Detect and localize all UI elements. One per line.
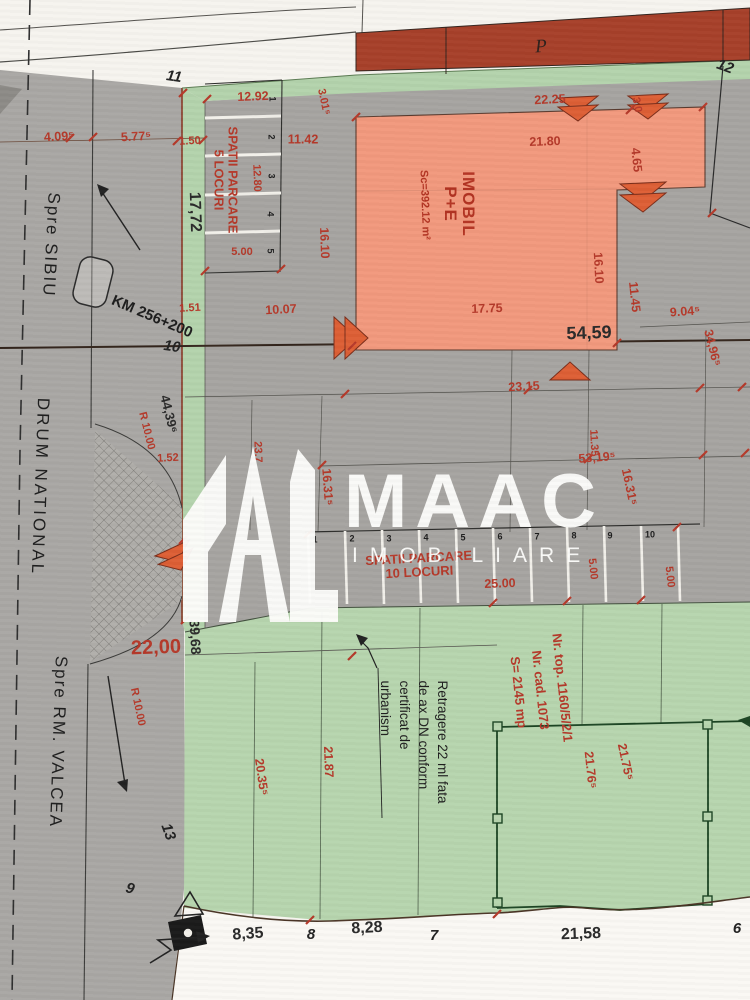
stall-number: 6 [497, 532, 502, 541]
building-area-label: Sc=392.12 m² [417, 170, 431, 240]
dim: 12.80 [250, 164, 263, 192]
dim-black: 21,58 [561, 926, 602, 944]
dim: 5.00 [231, 247, 252, 259]
dim: 4.09⁵ [44, 130, 75, 145]
dim: 22,00 [131, 637, 182, 660]
stall-number: 7 [534, 532, 539, 541]
stall-number: 8 [571, 531, 576, 540]
parking-bottom-title: SPATII PARCARE 10 LOCURI [365, 549, 473, 582]
dim: 4.65 [628, 147, 644, 173]
setback-note: Retragere 22 ml fata de ax DN conform ce… [375, 680, 451, 803]
green-area [184, 602, 750, 921]
dim: 5.77⁵ [121, 130, 152, 145]
site-plan-scan: Spre SIBIU DRUM NATIONAL Spre RM. VALCEA… [0, 0, 750, 1000]
dim: 16.10 [591, 252, 606, 284]
stall-number: 1 [312, 535, 317, 544]
stall-number: 5 [265, 248, 274, 253]
point-8: 8 [307, 927, 315, 943]
dim-black: 17,72 [185, 192, 203, 233]
cadastral-info: Nr. top. 1160/5/2/1 Nr. cad. 1073 S= 214… [501, 632, 578, 747]
dim: 9.04⁵ [669, 304, 700, 319]
dim: 3.0 [629, 96, 643, 113]
point-11: 11 [165, 68, 183, 86]
dim-black: 8,35 [232, 926, 264, 945]
green-strip-left [182, 88, 205, 632]
dim-black: 39,68 [187, 619, 204, 655]
dim: 1.52 [157, 453, 179, 466]
dim: 12.92 [237, 90, 269, 104]
stall-number: 4 [265, 211, 274, 216]
stall-number: 5 [460, 533, 465, 542]
building-label: IMOBIL P+E [441, 171, 477, 237]
dim: 22.25 [534, 93, 566, 108]
dim: 17.75 [471, 302, 503, 316]
dim: 25.00 [484, 577, 516, 591]
stall-number: 4 [423, 533, 428, 542]
dim-black: 8,28 [351, 920, 383, 938]
dim: 5.00 [585, 558, 599, 581]
dim: 21.80 [529, 135, 561, 149]
stall-number: 2 [266, 134, 275, 139]
dim: 1.51 [179, 303, 201, 316]
dim: 11.45 [626, 281, 642, 313]
dim: 5.00 [662, 566, 676, 589]
stall-number: 3 [386, 534, 391, 543]
dim: 11.42 [288, 133, 319, 146]
stall-number: 9 [607, 531, 612, 540]
dim: 16.31⁵ [319, 468, 335, 506]
dim: 1.50 [179, 136, 201, 149]
dim: 53,19⁵ [578, 450, 616, 466]
dim: 23.15 [508, 380, 540, 395]
stall-number: 10 [645, 530, 655, 539]
dim: 16.10 [317, 227, 331, 259]
neighbor-building-label: P [535, 37, 548, 58]
dim: 21.87 [321, 746, 335, 778]
dim: 23.7 [251, 441, 263, 463]
stall-number: 2 [349, 534, 354, 543]
dim: 10.07 [265, 303, 297, 318]
parking-top-title: SPATII PARCARE 5 LOCURI [212, 127, 239, 234]
point-6: 6 [733, 921, 741, 937]
stall-number: 3 [266, 173, 275, 178]
dim: 21.76⁵ [582, 751, 599, 789]
point-7: 7 [430, 928, 438, 944]
dim-black: 54,59 [566, 323, 612, 343]
point-10: 10 [163, 338, 182, 356]
